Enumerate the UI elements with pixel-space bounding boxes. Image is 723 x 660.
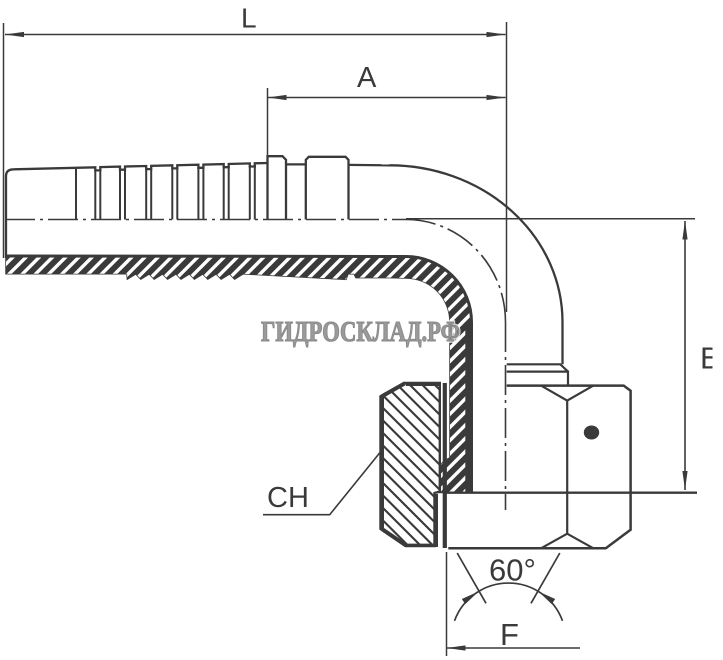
svg-text:L: L bbox=[241, 2, 257, 33]
svg-text:CH: CH bbox=[267, 482, 309, 514]
svg-text:A: A bbox=[357, 62, 377, 94]
svg-text:ГИДРОСКЛАД.РФ: ГИДРОСКЛАД.РФ bbox=[261, 317, 460, 348]
svg-text:F: F bbox=[500, 617, 519, 652]
svg-text:60°: 60° bbox=[489, 553, 536, 588]
